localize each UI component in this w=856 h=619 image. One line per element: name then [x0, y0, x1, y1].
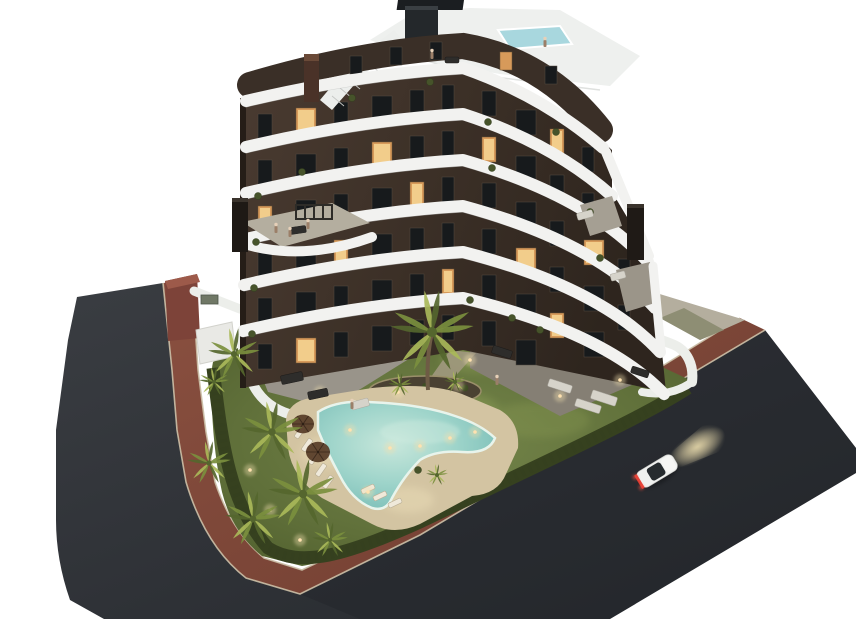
wall-vent-grille — [201, 295, 218, 304]
person — [350, 399, 353, 409]
garden-light — [448, 436, 452, 440]
window — [334, 332, 348, 357]
potted-plant — [467, 297, 474, 304]
potted-plant — [489, 165, 496, 172]
potted-plant — [349, 95, 356, 102]
window — [442, 177, 454, 202]
furniture-set — [445, 57, 459, 63]
palm-crown — [212, 380, 216, 384]
potted-plant — [485, 119, 492, 126]
potted-plant — [537, 327, 544, 334]
person — [543, 37, 546, 47]
garden-light — [418, 444, 422, 448]
person — [288, 227, 291, 237]
person — [274, 223, 277, 233]
window-glow — [484, 139, 494, 160]
window-glow — [412, 184, 422, 205]
garden-light — [473, 430, 477, 434]
window — [258, 160, 272, 185]
window — [442, 85, 454, 110]
architectural-render — [0, 0, 856, 619]
palm-crown — [299, 490, 307, 498]
garden-light — [248, 468, 252, 472]
potted-plant — [415, 467, 422, 474]
chimney-right — [627, 208, 644, 260]
potted-plant — [251, 285, 258, 292]
garden-light — [618, 378, 622, 382]
window — [258, 114, 272, 139]
potted-plant — [299, 169, 306, 176]
chimney-penthouse-cap — [304, 54, 319, 61]
window — [482, 229, 496, 254]
window — [482, 275, 496, 300]
potted-plant — [249, 331, 256, 338]
window — [482, 183, 496, 208]
person — [495, 375, 498, 385]
window — [482, 91, 496, 116]
window — [442, 131, 454, 156]
garden-light — [388, 446, 392, 450]
palm-crown — [398, 383, 402, 387]
render-canvas — [0, 0, 856, 619]
window — [372, 326, 392, 351]
palm-crown — [250, 516, 257, 523]
palm-crown — [435, 473, 439, 477]
chimney-left — [232, 202, 248, 252]
garden-light — [348, 428, 352, 432]
person — [430, 49, 433, 59]
window — [442, 223, 454, 248]
palm-crown — [268, 428, 275, 435]
window — [258, 344, 272, 369]
potted-plant — [509, 315, 516, 322]
parasol — [292, 415, 314, 434]
person — [306, 219, 309, 229]
window — [516, 340, 536, 365]
palm-crown — [453, 380, 457, 384]
palm-crown — [328, 538, 332, 542]
potted-plant — [427, 79, 434, 86]
window — [482, 321, 496, 346]
garden-light — [298, 538, 302, 542]
garden-light — [468, 358, 472, 362]
potted-plant — [597, 255, 604, 262]
potted-plant — [255, 193, 262, 200]
window-glow — [298, 340, 314, 361]
garden-light — [366, 490, 370, 494]
chimney-penthouse — [304, 58, 319, 102]
potted-plant — [553, 129, 560, 136]
palm-crown — [427, 327, 437, 337]
garden-light — [558, 394, 562, 398]
potted-plant — [253, 239, 260, 246]
window-glow — [444, 271, 452, 292]
parasol — [306, 442, 330, 462]
palm-crown — [231, 351, 237, 357]
palm-crown — [206, 460, 211, 465]
